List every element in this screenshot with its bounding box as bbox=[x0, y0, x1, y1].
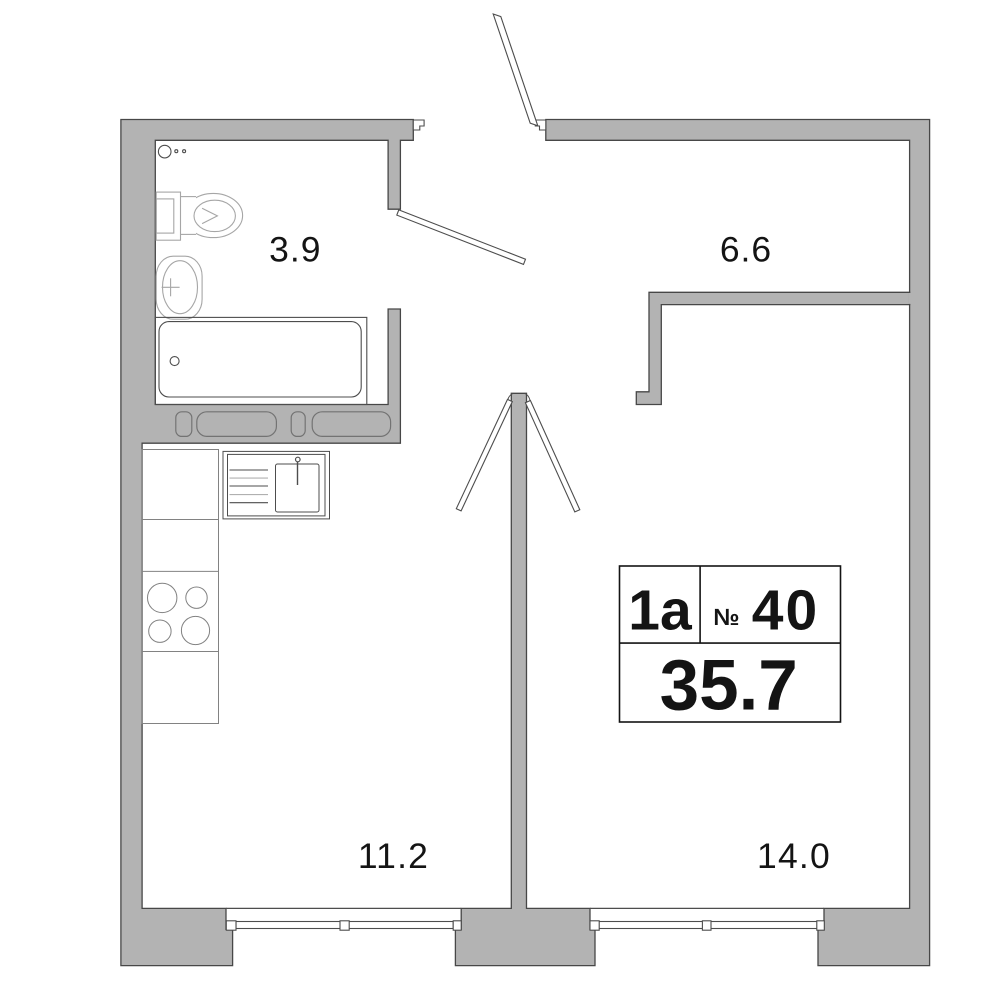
svg-text:3.9: 3.9 bbox=[269, 230, 321, 270]
svg-text:35.7: 35.7 bbox=[660, 647, 798, 726]
svg-text:40: 40 bbox=[752, 578, 819, 642]
svg-text:1a: 1a bbox=[628, 578, 693, 642]
svg-text:14.0: 14.0 bbox=[757, 836, 831, 876]
svg-text:№: № bbox=[713, 604, 739, 630]
svg-text:6.6: 6.6 bbox=[720, 230, 772, 270]
svg-text:11.2: 11.2 bbox=[358, 836, 429, 876]
